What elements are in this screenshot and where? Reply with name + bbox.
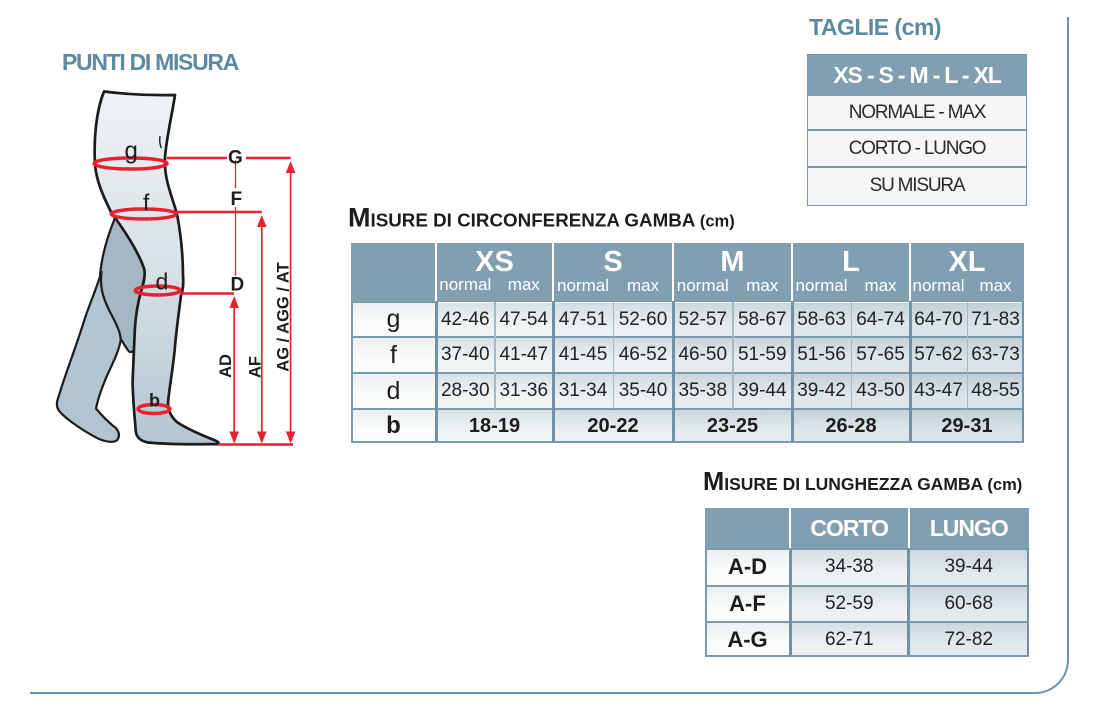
svg-text:AG / AGG / AT: AG / AGG / AT xyxy=(275,262,293,371)
svg-text:g: g xyxy=(125,138,138,165)
svg-text:D: D xyxy=(231,275,245,296)
svg-text:f: f xyxy=(143,190,150,216)
svg-text:d: d xyxy=(156,269,169,295)
svg-text:b: b xyxy=(149,391,160,411)
svg-text:AD: AD xyxy=(217,354,235,378)
svg-text:F: F xyxy=(231,189,243,210)
svg-text:G: G xyxy=(228,148,243,169)
svg-text:AF: AF xyxy=(247,356,265,378)
